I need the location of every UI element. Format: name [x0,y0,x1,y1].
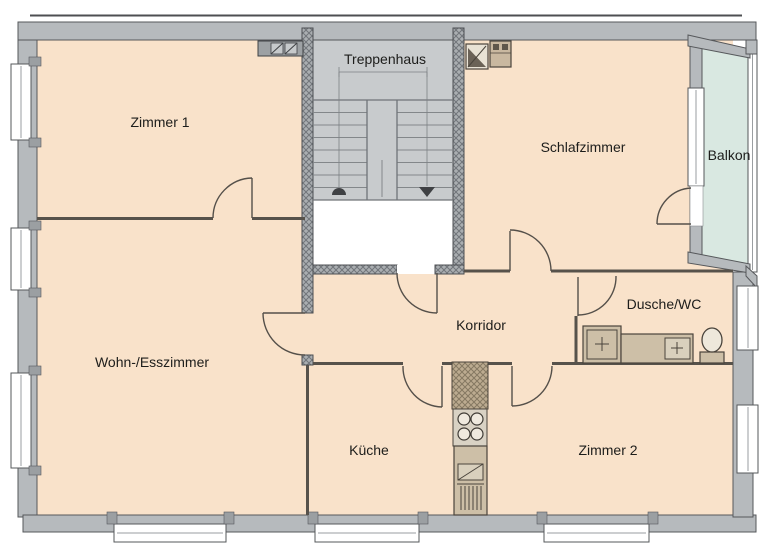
shaft-icon-1 [466,44,488,69]
vent-icon [258,41,303,56]
label-schlafzimmer: Schlafzimmer [541,139,626,155]
label-dusche-wc: Dusche/WC [627,296,702,312]
label-treppenhaus: Treppenhaus [344,51,426,67]
floorplan-drawing: Zimmer 1 Treppenhaus Schlafzimmer Balkon… [0,0,760,559]
shower-icon [583,326,621,363]
window-jamb [29,138,41,147]
stove-icon [453,409,487,446]
window-jamb [29,57,41,66]
stair-wall-south-right [435,265,464,274]
balcony-door-opening [690,186,703,226]
stair-wall-south-left [313,265,397,274]
window-jamb [224,512,234,524]
window-jamb [537,512,547,524]
label-korridor: Korridor [456,317,506,333]
window-jamb [308,512,318,524]
window-jamb [648,512,658,524]
window-jamb [107,512,117,524]
kitchen-sink-icon [454,446,487,515]
stair-wall-west [302,28,313,313]
stair-wall-west-stub [302,355,313,365]
label-zimmer2: Zimmer 2 [578,442,637,458]
floorplan-page: Zimmer 1 Treppenhaus Schlafzimmer Balkon… [0,0,760,559]
window-jamb [29,466,41,475]
entry-door-opening [397,265,435,274]
stair-wall-east [453,28,464,270]
label-wohn-esszimmer: Wohn-/Esszimmer [95,354,209,370]
wall-top [18,22,756,40]
window-jamb [29,221,41,230]
shaft-icon-2 [490,41,511,67]
stair-landing [313,200,453,265]
window-jamb [29,366,41,375]
window-jamb [418,512,428,524]
washbasin-icon [621,334,693,363]
toilet-icon [700,328,724,363]
label-zimmer1: Zimmer 1 [130,114,189,130]
window-jamb [29,288,41,297]
chimney-shaft [452,362,488,409]
label-kueche: Küche [349,442,389,458]
balcony-corner-top [746,40,757,54]
label-balkon: Balkon [708,147,751,163]
